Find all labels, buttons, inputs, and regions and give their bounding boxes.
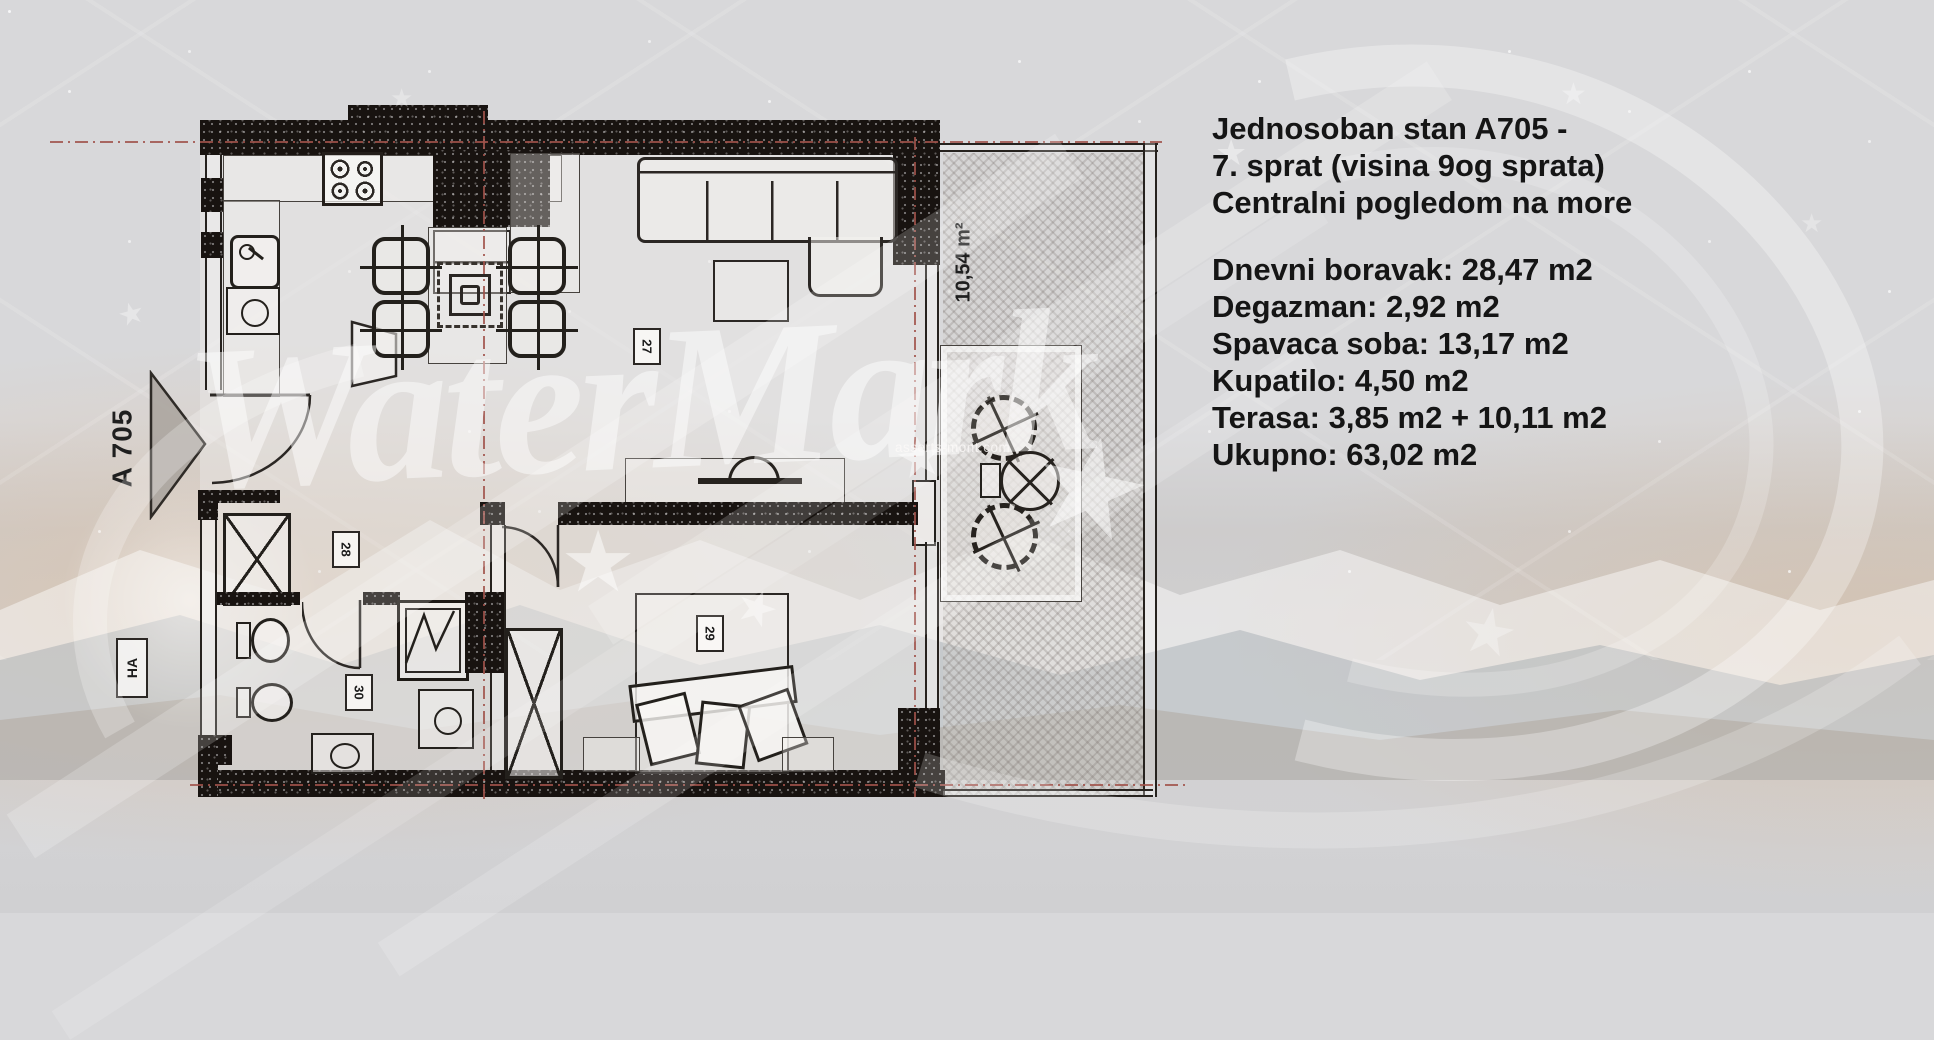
window-mullion-1 bbox=[201, 178, 223, 212]
area-line: Ukupno: 63,02 m2 bbox=[1212, 436, 1852, 473]
apartment-title-line: Jednosoban stan A705 - bbox=[1212, 110, 1852, 147]
area-line: Degazman: 2,92 m2 bbox=[1212, 288, 1852, 325]
watermark-star-icon: ★ bbox=[1560, 80, 1587, 110]
shower-zigzag-icon bbox=[402, 605, 458, 670]
watermark-star-icon: ★ bbox=[1455, 596, 1523, 669]
area-line: Kupatilo: 4,50 m2 bbox=[1212, 362, 1852, 399]
bedroom-wall-block bbox=[488, 592, 504, 673]
kitchen-sink-icon bbox=[230, 235, 280, 289]
nightstand bbox=[583, 737, 640, 772]
info-spacer bbox=[1212, 221, 1852, 251]
apartment-title-line: 7. sprat (visina 9og sprata) bbox=[1212, 147, 1852, 184]
speckle-dots bbox=[8, 10, 11, 13]
area-line: Terasa: 3,85 m2 + 10,11 m2 bbox=[1212, 399, 1852, 436]
area-line: Spavaca soba: 13,17 m2 bbox=[1212, 325, 1852, 362]
nightstand bbox=[782, 737, 834, 772]
top-wall bbox=[200, 120, 940, 155]
dining-chair bbox=[372, 237, 430, 295]
watermark-star-icon: ★ bbox=[891, 427, 947, 488]
sofa bbox=[637, 157, 898, 243]
watermark-url-text: asserts-mont.com bbox=[895, 440, 1010, 455]
top-wall-pier bbox=[348, 105, 488, 122]
washing-machine-icon bbox=[418, 689, 474, 749]
apartment-info-panel: Jednosoban stan A705 - 7. sprat (visina … bbox=[1212, 110, 1852, 473]
stove-icon bbox=[322, 152, 383, 206]
bathroom-wall-block bbox=[465, 592, 490, 673]
watermark-star-icon: ★ bbox=[560, 520, 636, 605]
window-mullion-2 bbox=[201, 232, 223, 258]
watermark-brand-text: WaterMark bbox=[180, 262, 1100, 537]
watermark-star-icon: ★ bbox=[390, 85, 413, 111]
area-line: Dnevni boravak: 28,47 m2 bbox=[1212, 251, 1852, 288]
axis-line-top bbox=[50, 141, 1162, 143]
apartment-title-line: Centralni pogledom na more bbox=[1212, 184, 1852, 221]
watermark-arc-bottom bbox=[900, 560, 1934, 880]
